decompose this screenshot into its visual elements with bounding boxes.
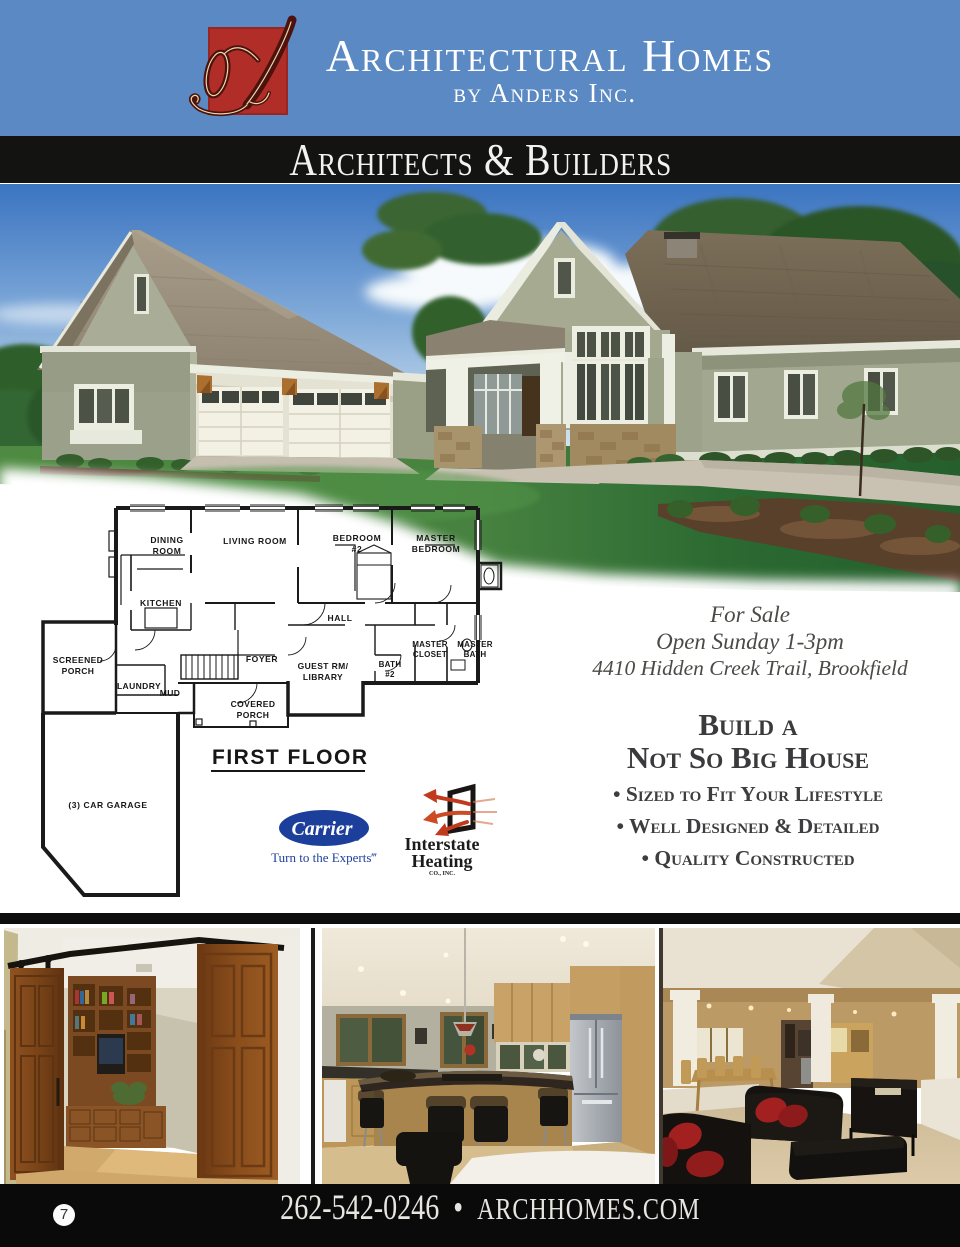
svg-text:MUD: MUD	[160, 688, 181, 698]
svg-text:BATH: BATH	[464, 650, 487, 659]
svg-text:LIVING ROOM: LIVING ROOM	[223, 536, 287, 546]
svg-text:CO., INC.: CO., INC.	[429, 871, 456, 877]
svg-text:LIBRARY: LIBRARY	[303, 672, 343, 682]
svg-text:BEDROOM: BEDROOM	[412, 544, 461, 554]
svg-text:Heating: Heating	[412, 851, 473, 871]
svg-text:ROOM: ROOM	[153, 546, 182, 556]
svg-text:FOYER: FOYER	[246, 654, 278, 664]
svg-text:KITCHEN: KITCHEN	[140, 598, 182, 608]
svg-text:COVERED: COVERED	[231, 699, 276, 709]
svg-text:HALL: HALL	[327, 613, 352, 623]
svg-text:BATH: BATH	[379, 660, 402, 669]
svg-text:#2: #2	[385, 670, 395, 679]
svg-text:Carrier: Carrier	[291, 818, 352, 840]
svg-text:LAUNDRY: LAUNDRY	[117, 681, 161, 691]
svg-text:MASTER: MASTER	[412, 640, 448, 649]
svg-text:PORCH: PORCH	[237, 710, 270, 720]
svg-text:(3) CAR GARAGE: (3) CAR GARAGE	[68, 800, 147, 810]
svg-text:Turn to the Experts‴: Turn to the Experts‴	[271, 850, 377, 865]
svg-text:#2: #2	[352, 544, 363, 554]
svg-text:CLOSET: CLOSET	[413, 650, 447, 659]
svg-text:DINING: DINING	[150, 535, 183, 545]
svg-text:PORCH: PORCH	[62, 666, 95, 676]
svg-text:MASTER: MASTER	[416, 533, 456, 543]
svg-text:BEDROOM: BEDROOM	[333, 533, 382, 543]
svg-text:SCREENED: SCREENED	[53, 655, 103, 665]
svg-text:FIRST FLOOR: FIRST FLOOR	[212, 746, 369, 769]
svg-text:R: R	[356, 836, 359, 841]
svg-text:GUEST RM/: GUEST RM/	[298, 661, 349, 671]
svg-text:MASTER: MASTER	[457, 640, 493, 649]
